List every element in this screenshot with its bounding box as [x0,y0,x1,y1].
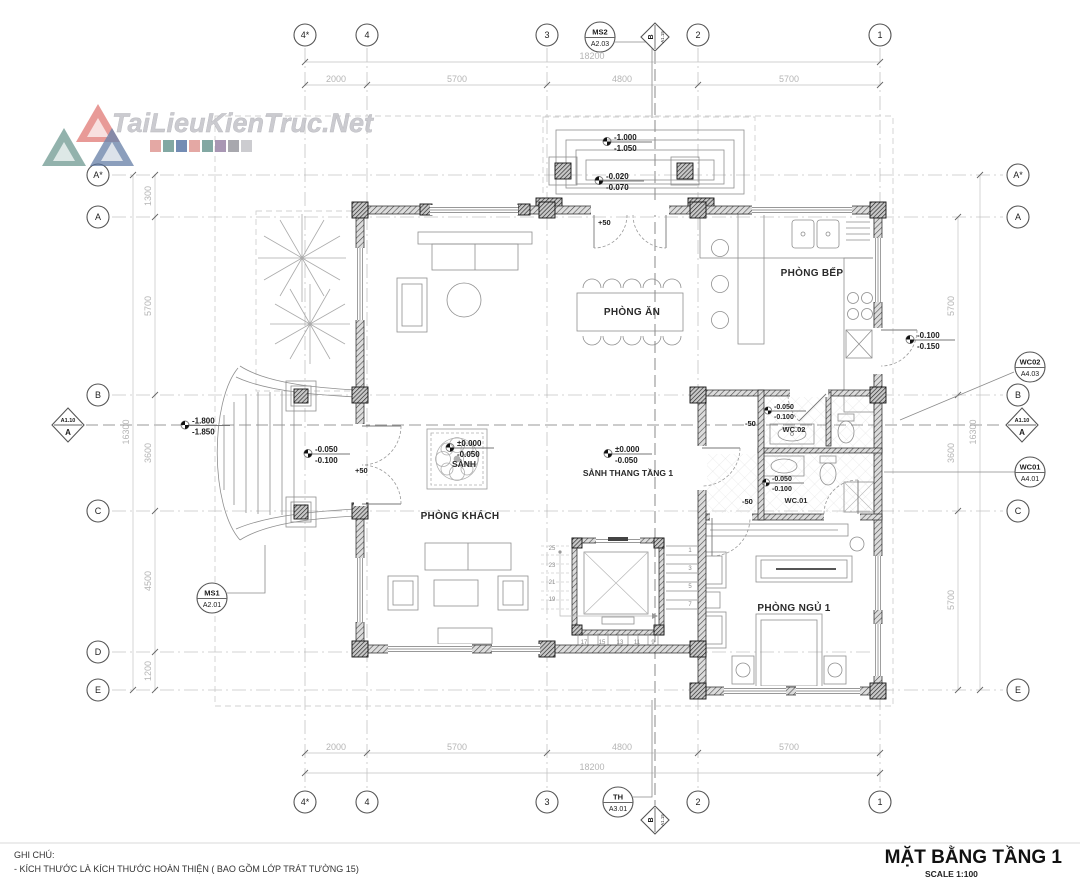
level-left-stair: -1.800-1.850 [181,417,230,437]
room-label-stair-hall: SẢNH THANG TẦNG 1 [583,467,673,478]
grid-bubble-top: 4* [294,24,316,46]
svg-text:A4.01: A4.01 [1021,476,1039,483]
stair-core: 25 23 21 19 1 3 5 7 17 15 13 11 9 [541,537,697,646]
grid-bubble-bottom: 4* [294,791,316,813]
section-marker-b-top: BA1.15 [641,23,669,51]
trees [258,214,350,364]
grid-bubble-right: C [1007,500,1029,522]
window [388,644,472,654]
grid-bubble-bottom: 2 [687,791,709,813]
watermark: TaiLieuKienTruc.Net [42,104,374,166]
level-left-door: -0.050-0.100 [304,445,350,465]
level-kitchen-exit: -0.100-0.150 [906,331,955,351]
tree-icon [270,284,350,364]
svg-text:2: 2 [695,797,700,807]
svg-text:B: B [648,34,655,39]
level-stairhall: ±0.000-0.050 [604,445,652,465]
svg-text:MS1: MS1 [204,589,219,598]
svg-text:C: C [95,506,102,516]
svg-text:-0.100: -0.100 [917,331,940,340]
grid-bubble-top: 1 [869,24,891,46]
grid-bubble-left: B [87,384,109,406]
svg-text:3: 3 [544,797,549,807]
floor-plan-page: 25 23 21 19 1 3 5 7 17 15 13 11 9 [0,0,1080,892]
grid-bubble-right: E [1007,679,1029,701]
sink-icon [792,220,839,248]
svg-text:-0.050: -0.050 [457,450,480,459]
window [873,238,883,302]
svg-text:A: A [1019,428,1025,437]
section-marker-a-right: A1.10A [1006,408,1038,442]
dim-label: 16300 [968,419,978,444]
svg-text:B: B [1015,390,1021,400]
living-sofa-set [388,543,528,644]
grid-bubble-left: D [87,641,109,663]
dim-label: 5700 [447,74,467,84]
grid-bubble-top: 3 [536,24,558,46]
svg-text:A4.03: A4.03 [1021,371,1039,378]
svg-text:A2.01: A2.01 [203,602,221,609]
dim-label: 18200 [579,762,604,772]
room-label-kitchen: PHÒNG BẾP [781,266,844,279]
svg-text:1: 1 [877,797,882,807]
grid-bubble-right: A* [1007,164,1029,186]
grid-bubble-bottom: 1 [869,791,891,813]
svg-text:WC02: WC02 [1020,358,1041,367]
bedroom-door [710,513,752,556]
svg-text:-0.050: -0.050 [315,445,338,454]
room-label-wc01: WC.01 [785,496,808,505]
window [724,686,786,696]
kitchen-counter [700,214,874,412]
svg-text:1: 1 [877,30,882,40]
dim-label: 5700 [779,742,799,752]
svg-text:E: E [95,685,101,695]
dim-label: 4500 [143,571,153,591]
svg-text:-0.050: -0.050 [772,476,792,483]
svg-text:4*: 4* [301,797,310,807]
window [492,644,540,654]
dim-label: 3600 [143,443,153,463]
window [873,624,883,676]
svg-text:-1.800: -1.800 [192,417,215,426]
grid-bubble-top: 2 [687,24,709,46]
elevator-cab [584,552,648,624]
svg-text:-0.100: -0.100 [772,486,792,493]
dim-label: 5700 [946,590,956,610]
svg-text:±0.000: ±0.000 [457,439,482,448]
bar-stool [712,312,729,329]
svg-text:E: E [1015,685,1021,695]
round-table [447,283,481,317]
room-label-bedroom: PHÒNG NGỦ 1 [757,601,830,614]
callout-th: THA3.01 [603,700,652,817]
svg-text:2: 2 [695,30,700,40]
svg-text:-1.850: -1.850 [192,428,215,437]
level-minus50-wc01: -50 [742,497,753,506]
stove-icon [848,293,873,320]
dim-label: 5700 [779,74,799,84]
room-label-dining: PHÒNG ĂN [604,305,660,318]
window [355,248,365,320]
grid-bubble-top: 4 [356,24,378,46]
svg-text:-0.020: -0.020 [606,172,629,181]
dim-label: 4800 [612,74,632,84]
svg-text:4: 4 [364,797,369,807]
porch-column-left [549,157,577,185]
tread-number: 19 [549,597,556,603]
section-marker-a-left: A1.10A [52,408,84,442]
floor-plan-canvas: 25 23 21 19 1 3 5 7 17 15 13 11 9 [0,0,1080,892]
kitchen-door [873,328,917,374]
portico-column-top [286,381,316,411]
svg-text:A1.15: A1.15 [660,814,665,826]
room-label-living: PHÒNG KHÁCH [421,509,500,522]
tread-number: 23 [549,563,556,569]
dim-label: 2000 [326,742,346,752]
tread-number: 1 [688,548,692,554]
svg-text:4*: 4* [301,30,310,40]
room-label-wc02: WC.02 [783,425,806,434]
svg-text:A: A [95,212,101,222]
side-entry-door [354,424,401,506]
grid-bubble-left: A* [87,164,109,186]
svg-text:-0.100: -0.100 [774,414,794,421]
svg-text:A*: A* [93,170,103,180]
svg-text:B: B [95,390,101,400]
fridge-icon [846,330,872,358]
window [355,558,365,622]
svg-text:MS2: MS2 [592,28,607,37]
svg-text:TH: TH [613,793,623,802]
svg-text:A*: A* [1013,170,1023,180]
svg-text:4: 4 [364,30,369,40]
svg-text:-0.150: -0.150 [917,342,940,351]
dim-label: 3600 [946,443,956,463]
dim-label: 5700 [143,296,153,316]
svg-text:3: 3 [544,30,549,40]
tree-icon [258,214,346,302]
grid-bubble-right: A [1007,206,1029,228]
svg-text:A3.01: A3.01 [609,806,627,813]
grid-bubble-left: C [87,500,109,522]
level-minus50-wc02: -50 [745,419,756,428]
porch-column-right [671,157,699,185]
svg-text:-0.070: -0.070 [606,183,629,192]
level-plus50-top: +50 [598,218,611,227]
svg-text:B: B [648,817,655,822]
dim-label: 1300 [143,186,153,206]
notes-heading: GHI CHÚ: [14,850,55,860]
svg-text:A1.15: A1.15 [660,31,665,43]
svg-text:A2.03: A2.03 [591,41,609,48]
grid-bubble-bottom: 4 [356,791,378,813]
tread-number: 21 [549,580,556,586]
svg-text:-1.050: -1.050 [614,144,637,153]
grid-bubble-left: A [87,206,109,228]
drawing-scale: SCALE 1:100 [925,869,978,879]
elevator-door [596,537,640,544]
svg-text:WC01: WC01 [1020,463,1041,472]
dim-label: 5700 [946,296,956,316]
watermark-brand: TaiLieuKienTruc.Net [112,108,374,138]
family-sofa [418,232,532,270]
svg-text:D: D [95,647,102,657]
title-block: GHI CHÚ: - KÍCH THƯỚC LÀ KÍCH THƯỚC HOÀN… [0,843,1080,879]
armchair [397,278,427,332]
window [752,205,852,215]
bar-stool [712,276,729,293]
tread-number: 7 [688,602,692,608]
room-label-lobby: SẢNH [452,458,476,469]
svg-text:A: A [65,428,71,437]
svg-text:A1.10: A1.10 [61,418,76,424]
dim-label: 2000 [326,74,346,84]
callout-wc01: WC01A4.01 [884,457,1045,487]
svg-text:A1.10: A1.10 [1015,418,1030,424]
tread-number: 5 [688,584,692,590]
dim-label: 4800 [612,742,632,752]
drawing-title: MẶT BẰNG TẦNG 1 [885,846,1063,868]
svg-text:-0.100: -0.100 [315,456,338,465]
svg-text:-0.050: -0.050 [615,456,638,465]
window [873,556,883,610]
tread-number: 25 [549,546,556,552]
bar-stool [712,240,729,257]
svg-text:-0.050: -0.050 [774,404,794,411]
nightstand [824,656,846,684]
callout-ms1: MS1A2.01 [197,545,265,613]
section-marker-b-bottom: BA1.15 [641,806,669,834]
drainboard [846,222,870,240]
dim-label: 16300 [121,419,131,444]
grid-bubble-bottom: 3 [536,791,558,813]
nightstand [732,656,754,684]
window [796,686,860,696]
svg-text:±0.000: ±0.000 [615,445,640,454]
grid-bubble-right: B [1007,384,1029,406]
grid-bubble-left: E [87,679,109,701]
dim-label: 5700 [447,742,467,752]
level-plus50-left: +50 [355,466,368,475]
svg-text:A: A [1015,212,1021,222]
dim-label: 1200 [143,661,153,681]
svg-text:-1.000: -1.000 [614,133,637,142]
watermark-squares [150,140,252,152]
svg-text:C: C [1015,506,1022,516]
notes-line: - KÍCH THƯỚC LÀ KÍCH THƯỚC HOÀN THIỆN ( … [14,863,359,874]
window [430,205,518,215]
tread-number: 3 [688,566,692,572]
